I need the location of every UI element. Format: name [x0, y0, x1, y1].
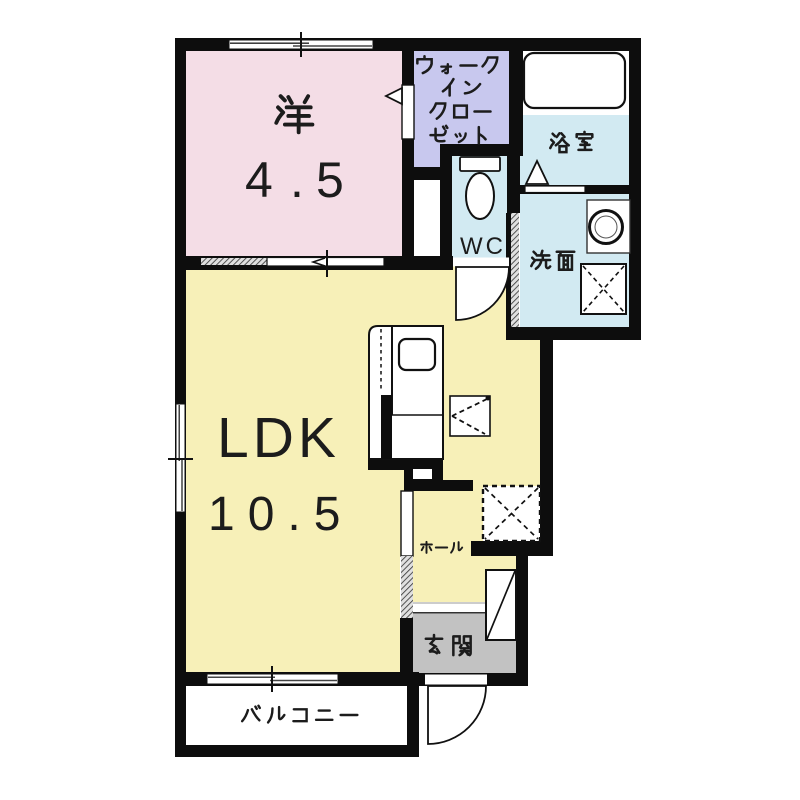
svg-text:10.5: 10.5: [208, 488, 353, 541]
svg-text:.: .: [290, 152, 304, 208]
svg-text:5: 5: [316, 152, 344, 208]
svg-text:4: 4: [245, 152, 273, 208]
svg-text:LDK: LDK: [217, 406, 340, 470]
svg-text:WC: WC: [460, 233, 506, 260]
